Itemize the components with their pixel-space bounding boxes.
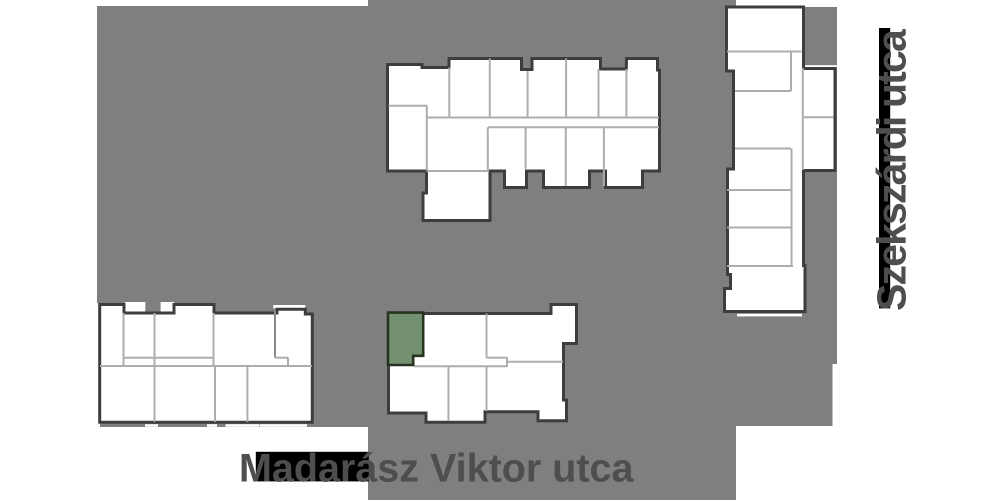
svg-text:Madarász Viktor utca: Madarász Viktor utca [239, 447, 634, 491]
svg-text:Szekszárdi utca: Szekszárdi utca [869, 28, 915, 311]
